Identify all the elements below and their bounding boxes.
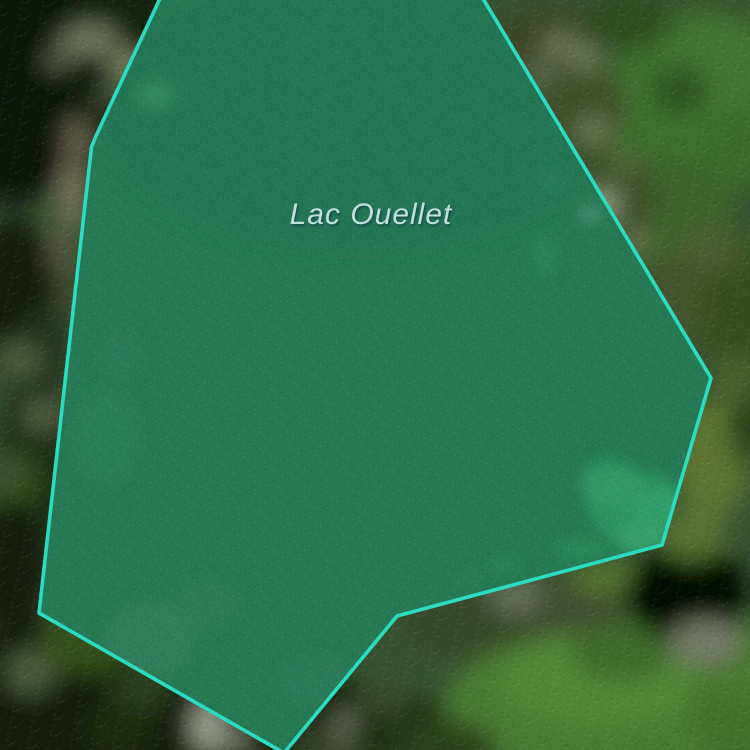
svg-text:Lac Ouellet: Lac Ouellet — [290, 198, 453, 231]
